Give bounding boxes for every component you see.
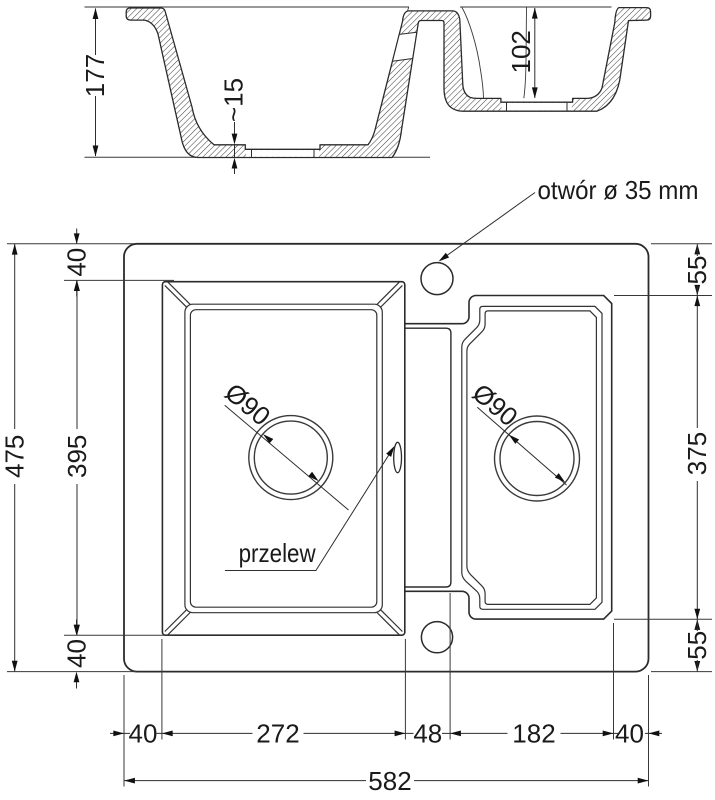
svg-text:40: 40 <box>129 719 158 749</box>
svg-text:177: 177 <box>80 54 110 97</box>
svg-text:przelew: przelew <box>239 538 316 568</box>
svg-text:otwór ø 35 mm: otwór ø 35 mm <box>538 175 699 205</box>
svg-text:55: 55 <box>682 256 712 285</box>
svg-text:375: 375 <box>682 432 712 475</box>
svg-text:272: 272 <box>256 719 299 749</box>
svg-text:40: 40 <box>615 719 644 749</box>
svg-text:~15: ~15 <box>218 78 248 122</box>
svg-text:48: 48 <box>413 719 442 749</box>
svg-text:Ø90: Ø90 <box>467 378 524 433</box>
svg-text:40: 40 <box>61 639 91 668</box>
svg-text:395: 395 <box>62 435 92 478</box>
svg-text:582: 582 <box>368 766 411 796</box>
svg-text:102: 102 <box>506 30 536 73</box>
svg-text:182: 182 <box>512 719 555 749</box>
svg-text:475: 475 <box>0 435 30 478</box>
svg-text:40: 40 <box>61 248 91 277</box>
svg-text:55: 55 <box>682 631 712 660</box>
